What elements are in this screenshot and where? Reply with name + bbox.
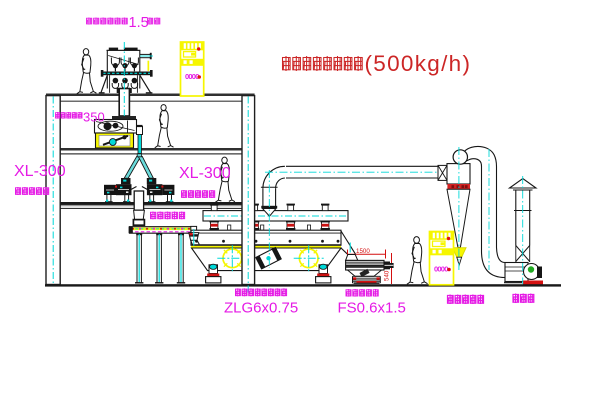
svg-text:XL-300: XL-300 [14, 163, 66, 180]
svg-text:ZLG6x0.75: ZLG6x0.75 [224, 300, 298, 317]
svg-text:350: 350 [83, 110, 105, 125]
svg-text:540: 540 [384, 270, 391, 281]
svg-text:XL-300: XL-300 [179, 165, 231, 182]
svg-text:1.5: 1.5 [129, 15, 149, 31]
svg-text:FS0.6x1.5: FS0.6x1.5 [338, 300, 406, 317]
svg-text:(500kg/h): (500kg/h) [365, 51, 472, 76]
svg-text:1500: 1500 [356, 248, 370, 255]
